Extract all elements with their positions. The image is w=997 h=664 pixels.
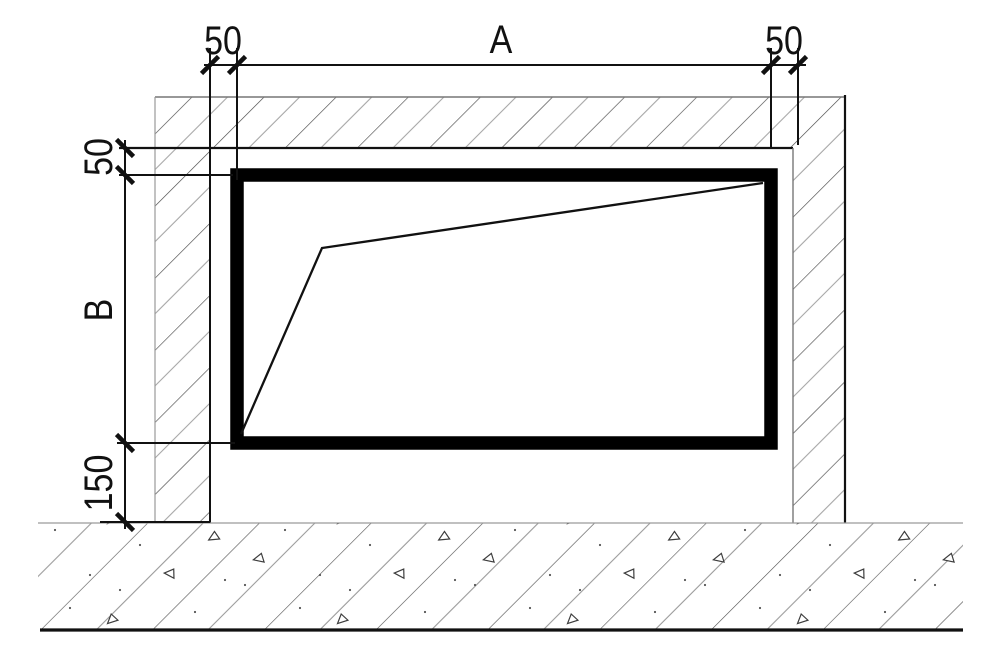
wall-opening-elevation-drawing: 50 A 50 50 B 150 — [0, 0, 997, 664]
floor-concrete-speckle — [38, 523, 963, 630]
dim-label-B: B — [75, 299, 120, 322]
diagonal-indicator-line — [241, 183, 763, 434]
floor-slab — [38, 523, 963, 630]
dim-label-top-left-50: 50 — [204, 17, 242, 62]
dim-label-left-50: 50 — [75, 138, 120, 176]
dim-label-top-right-50: 50 — [765, 17, 803, 62]
screen-frame — [237, 175, 771, 443]
technical-drawing-canvas: 50 A 50 50 B 150 — [0, 0, 997, 664]
wall-section-hatch — [155, 97, 845, 523]
dim-label-A: A — [490, 16, 513, 61]
dim-label-150: 150 — [75, 455, 120, 512]
